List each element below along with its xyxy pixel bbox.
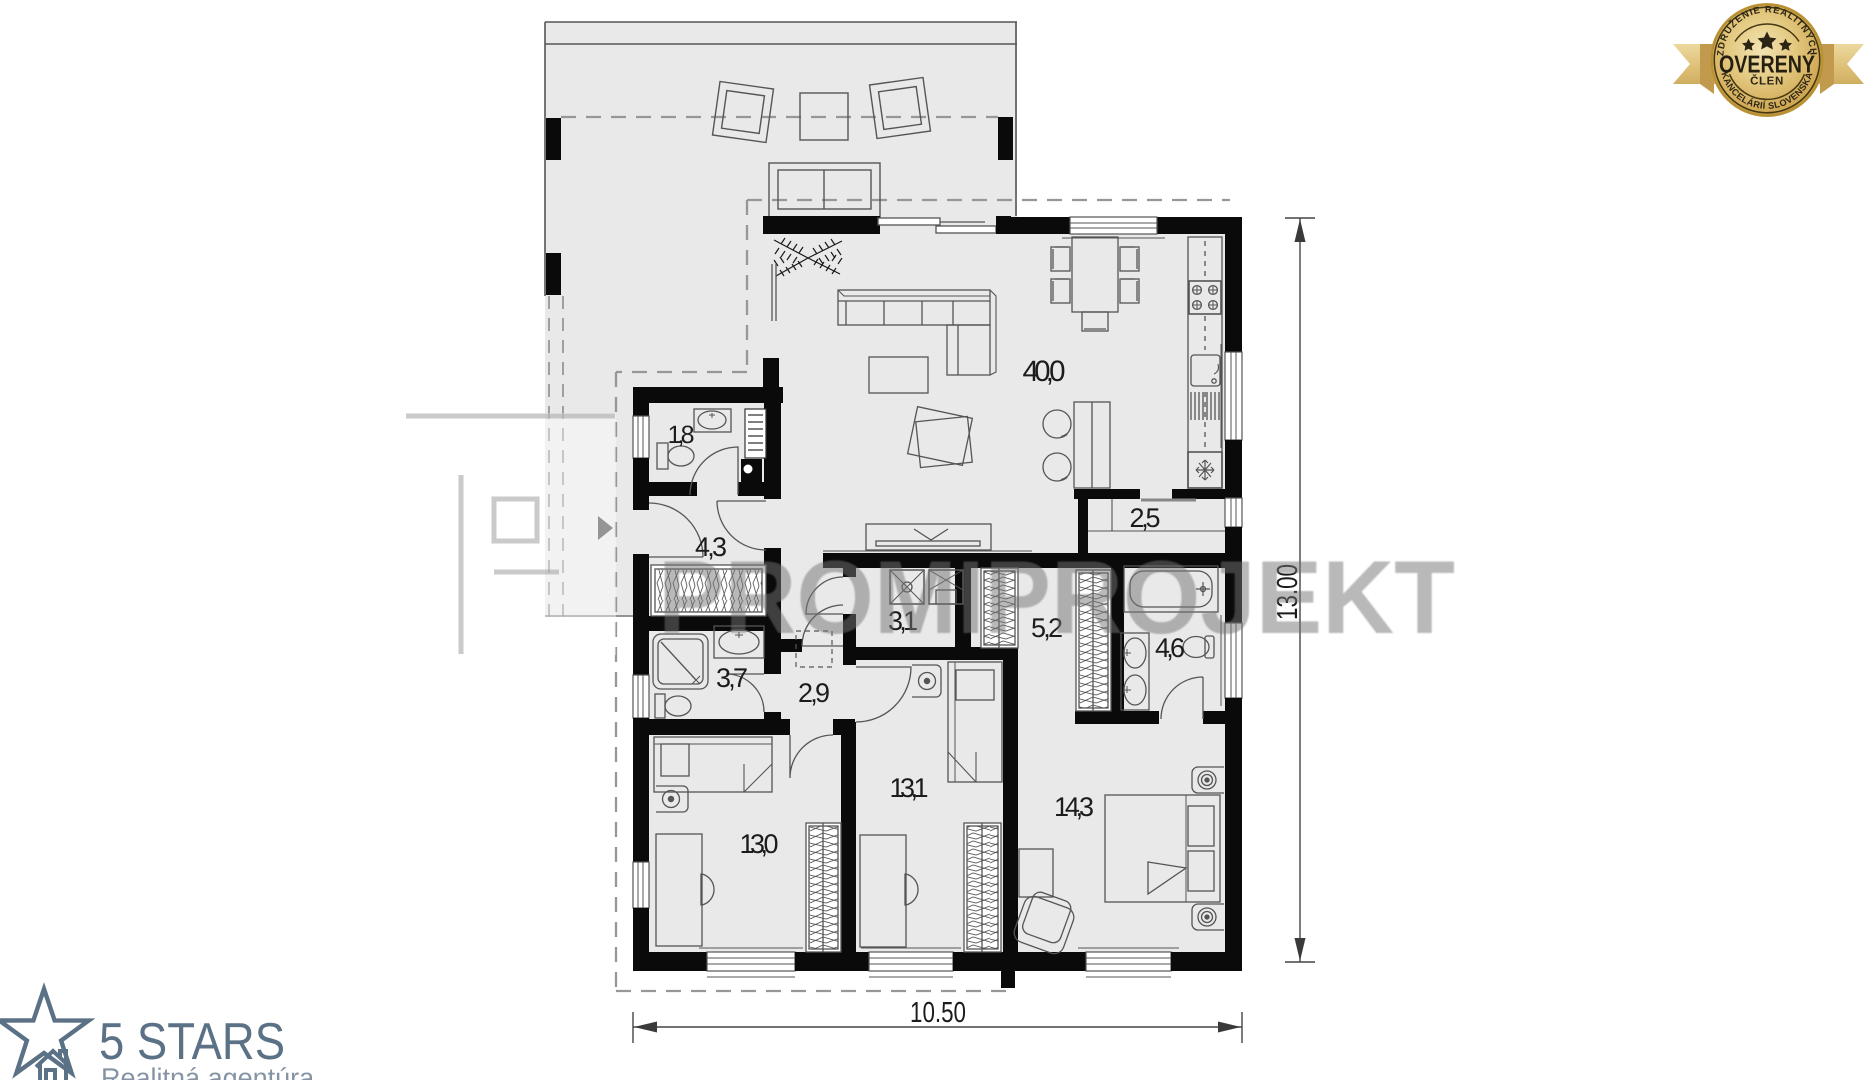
svg-text:OVERENÝ: OVERENÝ [1719,51,1815,79]
svg-text:ČLEN: ČLEN [1750,74,1784,88]
svg-text:3,7: 3,7 [716,663,748,693]
svg-text:1,8: 1,8 [668,421,695,449]
svg-text:10.50: 10.50 [910,997,966,1029]
svg-text:14,3: 14,3 [1054,792,1094,822]
svg-text:PROMIPROJEKT: PROMIPROJEKT [658,540,1455,656]
svg-text:13,1: 13,1 [890,773,929,803]
svg-text:Realitná agentúra: Realitná agentúra [101,1063,315,1080]
svg-text:2,5: 2,5 [1130,503,1161,533]
svg-text:40,0: 40,0 [1023,355,1066,388]
svg-text:2,9: 2,9 [798,678,830,708]
svg-text:13,0: 13,0 [740,829,779,859]
